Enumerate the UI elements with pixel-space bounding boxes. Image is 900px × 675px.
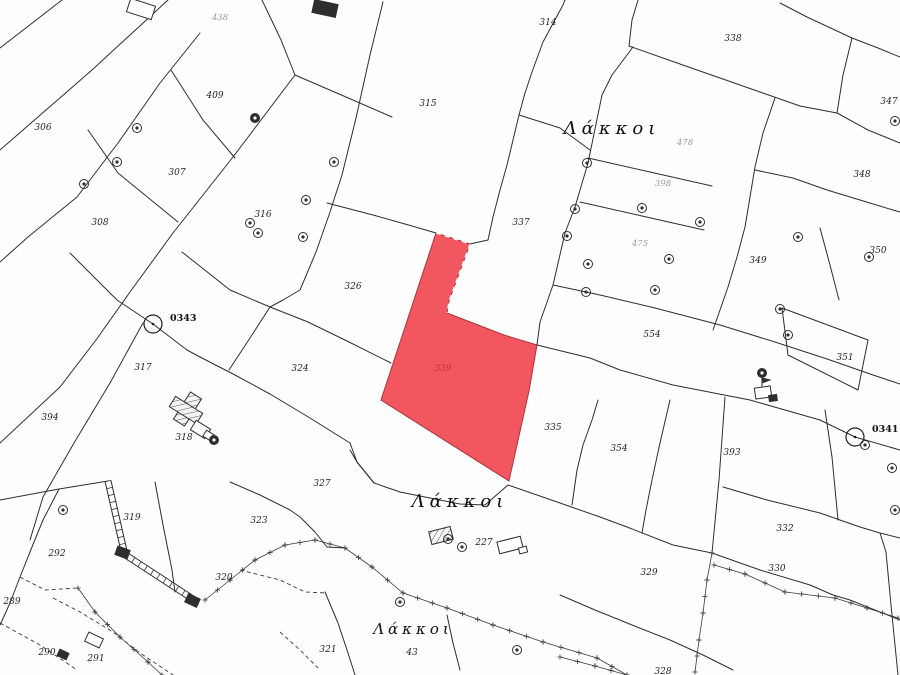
parcel-number-label: 308 xyxy=(91,218,108,228)
utility-pole-center xyxy=(446,537,449,540)
parcel-number-label: 316 xyxy=(254,210,271,220)
utility-pole-center xyxy=(332,160,335,163)
utility-pole-center xyxy=(212,438,215,441)
parcel-number-label: 337 xyxy=(512,218,529,228)
utility-pole-center xyxy=(585,161,588,164)
highlighted-parcel-number: 339 xyxy=(434,364,451,374)
utility-pole-center xyxy=(584,290,587,293)
parcel-number-label: 393 xyxy=(723,448,740,458)
parcel-number-label: 317 xyxy=(134,363,151,373)
map-svg: 03430341 ΛάκκοιΛάκκοιΛάκκοι3064093073083… xyxy=(0,0,900,675)
cadastral-map-canvas[interactable]: 03430341 ΛάκκοιΛάκκοιΛάκκοι3064093073083… xyxy=(0,0,900,675)
utility-pole-center xyxy=(135,126,138,129)
utility-pole-center xyxy=(890,466,893,469)
utility-pole-center xyxy=(82,182,85,185)
utility-pole-center xyxy=(565,234,568,237)
parcel-number-label: 227 xyxy=(474,538,492,548)
parcel-number-label: 394 xyxy=(41,413,58,423)
benchmark-dot xyxy=(854,436,857,439)
utility-pole-center xyxy=(115,160,118,163)
utility-pole-center xyxy=(893,119,896,122)
utility-pole-center xyxy=(398,600,401,603)
parcel-number-label: 306 xyxy=(34,123,51,133)
utility-pole-center xyxy=(256,231,259,234)
parcel-number-label: 307 xyxy=(168,168,185,178)
utility-pole-center xyxy=(667,257,670,260)
parcel-number-label: 43 xyxy=(405,648,418,658)
parcel-number-label: 290 xyxy=(37,648,55,658)
building-symbol xyxy=(769,394,778,401)
utility-pole-center xyxy=(304,198,307,201)
place-name-label: Λάκκοι xyxy=(562,118,661,139)
utility-pole-center xyxy=(786,333,789,336)
utility-pole-center xyxy=(796,235,799,238)
building-symbol xyxy=(518,546,527,554)
parcel-number-label: 319 xyxy=(123,513,140,523)
benchmark-dot xyxy=(152,323,155,326)
parcel-number-label: 320 xyxy=(215,573,232,583)
utility-pole-center xyxy=(653,288,656,291)
parcel-number-label: 330 xyxy=(768,564,785,574)
utility-pole-center xyxy=(893,508,896,511)
parcel-number-label: 318 xyxy=(175,433,192,443)
place-name-label: Λάκκοι xyxy=(371,620,453,638)
faint-parcel-number-label: 475 xyxy=(631,239,648,249)
parcel-number-label: 350 xyxy=(869,246,886,256)
utility-pole-center xyxy=(460,545,463,548)
utility-pole-center xyxy=(253,116,256,119)
parcel-number-label: 332 xyxy=(776,524,793,534)
utility-pole-center xyxy=(778,307,781,310)
utility-pole-center xyxy=(640,206,643,209)
parcel-number-label: 292 xyxy=(47,549,65,559)
parcel-number-label: 409 xyxy=(205,91,223,101)
parcel-number-label: 323 xyxy=(250,516,267,526)
parcel-number-label: 338 xyxy=(724,34,741,44)
parcel-number-label: 347 xyxy=(880,97,897,107)
faint-parcel-number-label: 438 xyxy=(211,13,229,23)
parcel-number-label: 554 xyxy=(643,330,660,340)
parcel-number-label: 326 xyxy=(344,282,361,292)
benchmark-label: 0341 xyxy=(872,424,898,435)
faint-parcel-number-label: 478 xyxy=(676,138,694,148)
faint-parcel-number-label: 398 xyxy=(655,179,672,189)
utility-pole-center xyxy=(586,262,589,265)
utility-pole-center xyxy=(515,648,518,651)
parcel-number-label: 328 xyxy=(654,667,671,675)
parcel-number-label: 351 xyxy=(836,353,853,363)
utility-pole-center xyxy=(301,235,304,238)
parcel-number-label: 321 xyxy=(319,645,336,655)
parcel-number-label: 327 xyxy=(313,479,330,489)
place-name-label: Λάκκοι xyxy=(410,491,509,512)
benchmark-label: 0343 xyxy=(170,313,196,324)
parcel-number-label: 348 xyxy=(853,170,870,180)
parcel-number-label: 289 xyxy=(2,597,20,607)
parcel-number-label: 291 xyxy=(86,654,104,664)
parcel-number-label: 335 xyxy=(544,423,561,433)
utility-pole-center xyxy=(760,371,763,374)
utility-pole-center xyxy=(573,207,576,210)
parcel-number-label: 324 xyxy=(291,364,308,374)
parcel-number-label: 349 xyxy=(749,256,766,266)
parcel-number-label: 329 xyxy=(640,568,657,578)
parcel-number-label: 315 xyxy=(419,99,436,109)
utility-pole-center xyxy=(61,508,64,511)
parcel-number-label: 314 xyxy=(539,18,556,28)
parcel-number-label: 354 xyxy=(610,444,627,454)
utility-pole-center xyxy=(698,220,701,223)
utility-pole-center xyxy=(248,221,251,224)
utility-pole-center xyxy=(863,443,866,446)
